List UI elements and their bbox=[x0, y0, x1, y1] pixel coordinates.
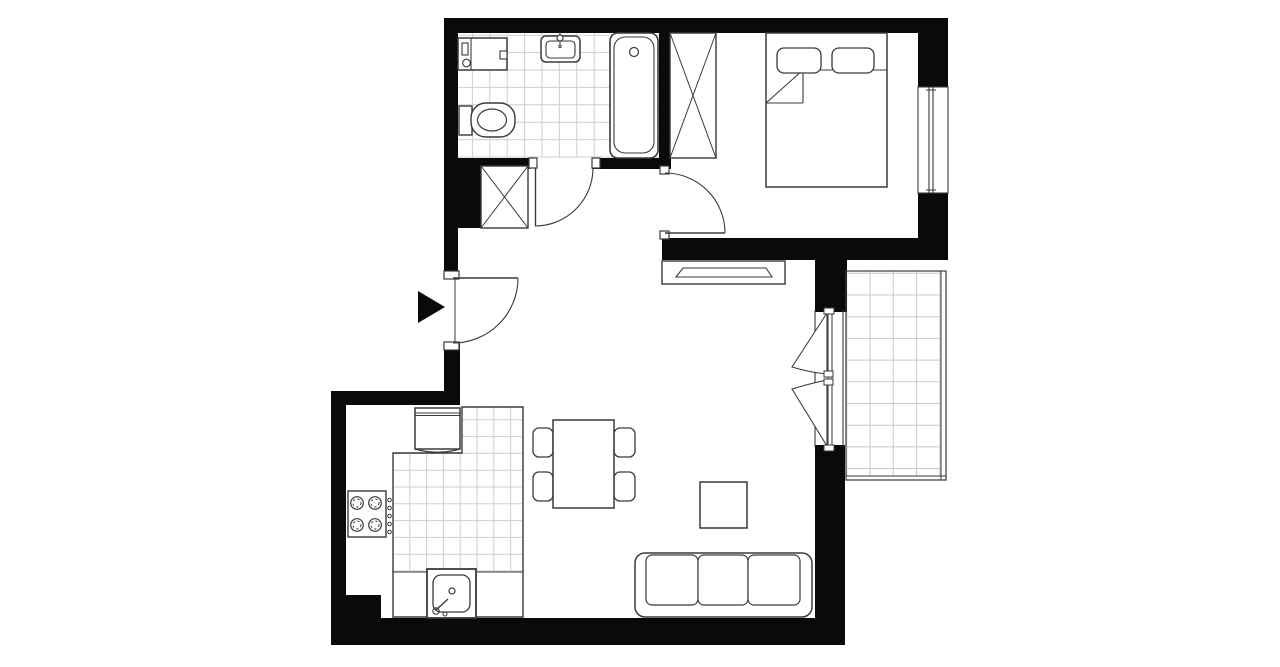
bed bbox=[766, 33, 887, 187]
bedroom-window bbox=[918, 87, 948, 193]
wall-bedroom-south bbox=[662, 238, 948, 260]
wall-bath-east bbox=[659, 33, 671, 169]
wall-left-upper bbox=[444, 18, 458, 278]
kitchen-sink bbox=[427, 569, 476, 618]
toilet bbox=[459, 103, 515, 137]
wall-balcony-door-top bbox=[815, 260, 847, 312]
wall-kitchen-top bbox=[331, 391, 460, 405]
floor-plan-canvas bbox=[0, 0, 1280, 667]
floor-plan bbox=[0, 0, 1280, 667]
wall-left-lower bbox=[331, 391, 346, 645]
wall-hall-column bbox=[458, 166, 482, 228]
wall-right-lower bbox=[815, 445, 845, 645]
washing-machine bbox=[458, 38, 507, 70]
hall-closet bbox=[481, 166, 528, 228]
coffee-table bbox=[700, 482, 747, 528]
fridge bbox=[415, 408, 460, 452]
wall-bottom-left-step bbox=[346, 595, 381, 618]
bathroom-sink bbox=[541, 31, 580, 62]
tv-stand bbox=[662, 261, 785, 284]
stove bbox=[348, 491, 391, 537]
sofa bbox=[635, 553, 812, 617]
bathtub bbox=[610, 33, 658, 158]
wardrobe bbox=[670, 33, 716, 158]
wall-bottom bbox=[331, 618, 845, 645]
wall-top bbox=[444, 18, 948, 33]
